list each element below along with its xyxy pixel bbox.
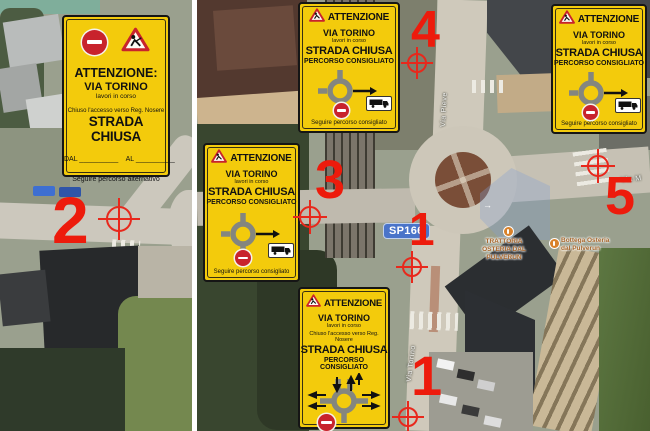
map-panel-left: ATTENZIONE: VIA TORINO lavori in corso C…	[0, 0, 192, 431]
truck-icon	[615, 98, 641, 113]
sign-closed: STRADA CHIUSA	[64, 114, 168, 144]
sign-road: VIA TORINO	[300, 28, 398, 38]
lawn	[118, 296, 192, 431]
sign-closed: STRADA CHIUSA	[300, 344, 388, 356]
sign-title: ATTENZIONE	[324, 298, 382, 309]
trees	[0, 348, 125, 431]
sign-works: lavori in corso	[300, 323, 388, 329]
truck-icon	[268, 243, 294, 258]
target-marker-1-mid	[396, 251, 428, 283]
map-ground	[138, 246, 192, 298]
oneway-arrow-icon: →	[483, 200, 492, 210]
sign-closed: STRADA CHIUSA	[300, 45, 398, 57]
detour-sign-5: ATTENZIONE VIA TORINO lavori in corso ST…	[551, 4, 647, 134]
no-entry-icon	[318, 414, 335, 431]
sign-footer: Seguire percorso alternativo	[64, 176, 168, 183]
closure-sign-main: ATTENZIONE: VIA TORINO lavori in corso C…	[62, 15, 170, 177]
sign-works: lavori in corso	[64, 93, 168, 100]
roadworks-icon	[121, 27, 150, 57]
no-entry-icon	[583, 105, 598, 120]
roundabout-arrows-diagram	[300, 373, 388, 427]
target-marker-2	[98, 198, 140, 240]
sign-road: VIA TORINO	[300, 313, 388, 323]
road-closure-figure: ATTENZIONE: VIA TORINO lavori in corso C…	[0, 0, 650, 431]
map-building-dark	[213, 5, 297, 70]
roundabout-diagram	[300, 67, 398, 119]
roundabout-diagram	[205, 208, 298, 264]
sign-advice: PERCORSO CONSIGLIATO	[553, 60, 645, 67]
sign-closed: STRADA CHIUSA	[553, 47, 645, 59]
no-entry-icon	[235, 250, 251, 266]
sign-advice: PERCORSO CONSIGLIATO	[300, 357, 388, 371]
field	[599, 248, 650, 431]
roadworks-icon	[306, 294, 321, 312]
detour-sign-3: ATTENZIONE VIA TORINO lavori in corso ST…	[203, 143, 300, 282]
sign-title: ATTENZIONE	[578, 14, 639, 25]
sign-road: VIA TORINO	[205, 169, 298, 179]
sign-footer: Seguire percorso consigliato	[205, 269, 298, 275]
map-building	[3, 14, 66, 68]
roundabout-diagram	[553, 69, 645, 119]
sign-road: VIA TORINO	[553, 30, 645, 40]
no-entry-icon	[82, 30, 107, 55]
roadworks-icon	[559, 10, 575, 29]
sign-closed: STRADA CHIUSA	[205, 186, 298, 198]
marker-number-1-mid: 1	[409, 210, 435, 249]
map-building-dark	[0, 270, 51, 327]
sign-dates: DAL __________ AL __________	[64, 156, 168, 163]
marker-number-5: 5	[605, 174, 635, 220]
map-road	[0, 202, 192, 245]
roadworks-icon	[309, 8, 325, 27]
marker-number-3: 3	[315, 158, 345, 204]
no-entry-icon	[334, 103, 349, 118]
detour-sign-4: ATTENZIONE VIA TORINO lavori in corso ST…	[298, 2, 400, 133]
poi-label-bottega: Bottega Osteria dal Pulverun	[561, 237, 617, 253]
crosswalk	[472, 80, 504, 93]
restaurant-poi-icon	[549, 238, 560, 249]
sign-access: Chiuso l'accesso verso Reg. Nosere	[300, 331, 388, 343]
sign-works: lavori in corso	[300, 38, 398, 44]
marker-number-4: 4	[411, 8, 440, 52]
poi-label-trattoria: TRATTORIA OSTERIA DAL PULVERUN	[475, 238, 533, 262]
sign-advice: PERCORSO CONSIGLIATO	[300, 58, 398, 65]
sign-footer: Seguire percorso consigliato	[553, 121, 645, 127]
roadworks-icon	[211, 149, 227, 168]
sign-road: VIA TORINO	[64, 81, 168, 93]
restaurant-poi-icon	[503, 226, 514, 237]
sign-works: lavori in corso	[205, 179, 298, 185]
map-panel-right: → SP166 Via Pieve Via Torino Via M TRATT…	[197, 0, 650, 431]
sign-title: ATTENZIONE:	[64, 66, 168, 80]
sign-works: lavori in corso	[553, 40, 645, 46]
sign-title: ATTENZIONE	[328, 12, 389, 23]
sign-advice: PERCORSO CONSIGLIATO	[205, 199, 298, 206]
detour-sign-1: ATTENZIONE VIA TORINO lavori in corso Ch…	[298, 287, 390, 429]
marker-number-2: 2	[52, 192, 89, 248]
truck-icon	[366, 96, 392, 111]
sign-footer: Seguire percorso consigliato	[300, 120, 398, 126]
marker-number-1-bottom: 1	[411, 352, 442, 400]
sign-title: ATTENZIONE	[230, 153, 291, 164]
crosswalk	[410, 311, 459, 331]
